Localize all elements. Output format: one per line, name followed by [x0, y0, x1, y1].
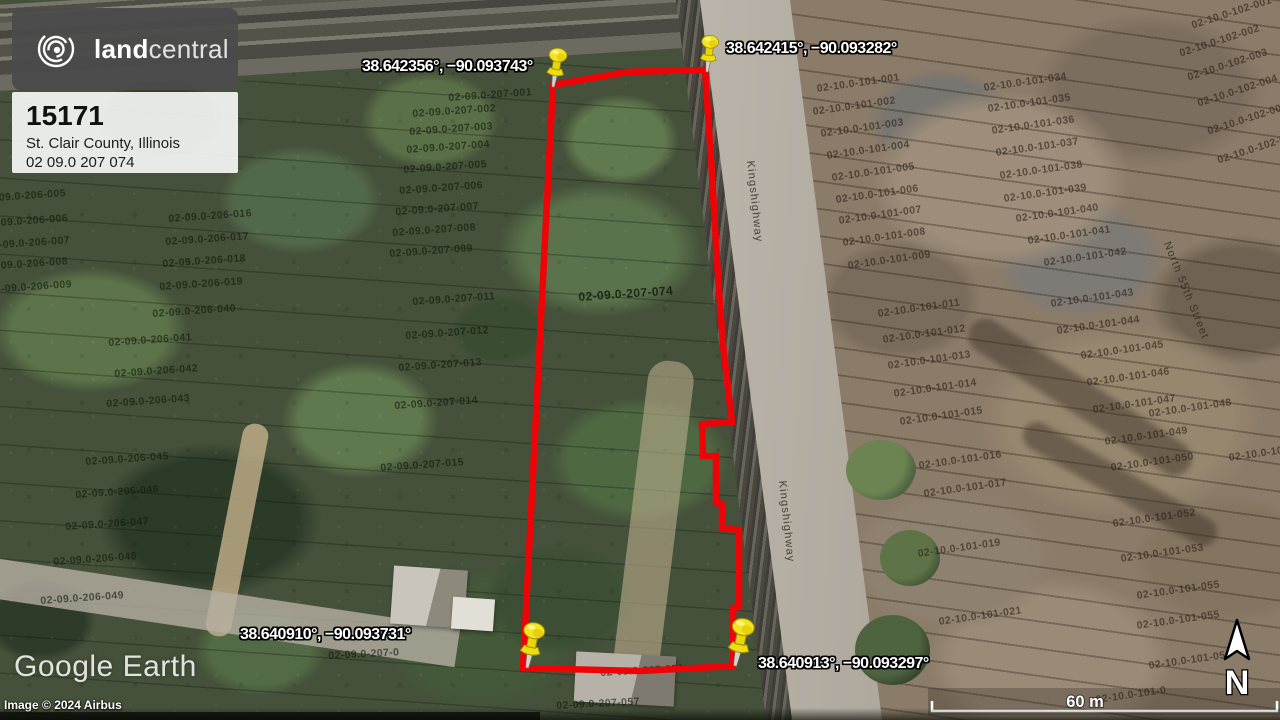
google-earth-viewport[interactable]: 02-09.0-207-00102-09.0-207-00202-09.0-20…	[0, 0, 1280, 720]
bottom-shade	[0, 708, 1280, 720]
north-label: N	[1225, 664, 1250, 702]
hud-layer: 60 m N	[0, 0, 1280, 720]
north-arrow-icon	[1225, 620, 1249, 659]
north-compass: N	[1225, 620, 1250, 702]
